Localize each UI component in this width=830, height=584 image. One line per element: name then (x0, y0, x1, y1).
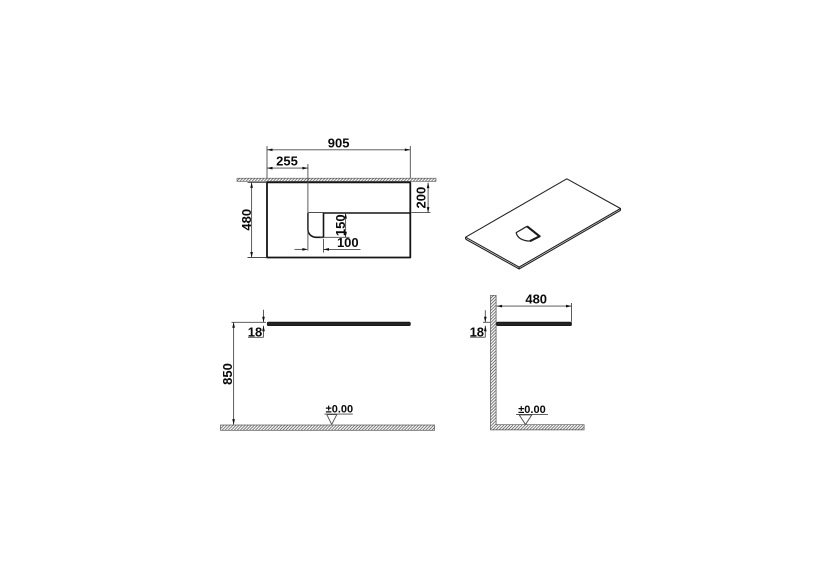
svg-text:905: 905 (328, 136, 350, 151)
svg-text:850: 850 (220, 363, 235, 385)
svg-text:18: 18 (470, 325, 484, 340)
svg-text:480: 480 (525, 292, 547, 307)
svg-text:100: 100 (337, 235, 359, 250)
svg-text:±0.00: ±0.00 (518, 404, 545, 416)
svg-text:150: 150 (333, 214, 348, 236)
svg-text:18: 18 (248, 324, 262, 339)
svg-text:±0.00: ±0.00 (326, 404, 353, 416)
svg-text:255: 255 (276, 154, 298, 169)
svg-text:200: 200 (413, 187, 428, 209)
svg-text:480: 480 (239, 209, 254, 231)
